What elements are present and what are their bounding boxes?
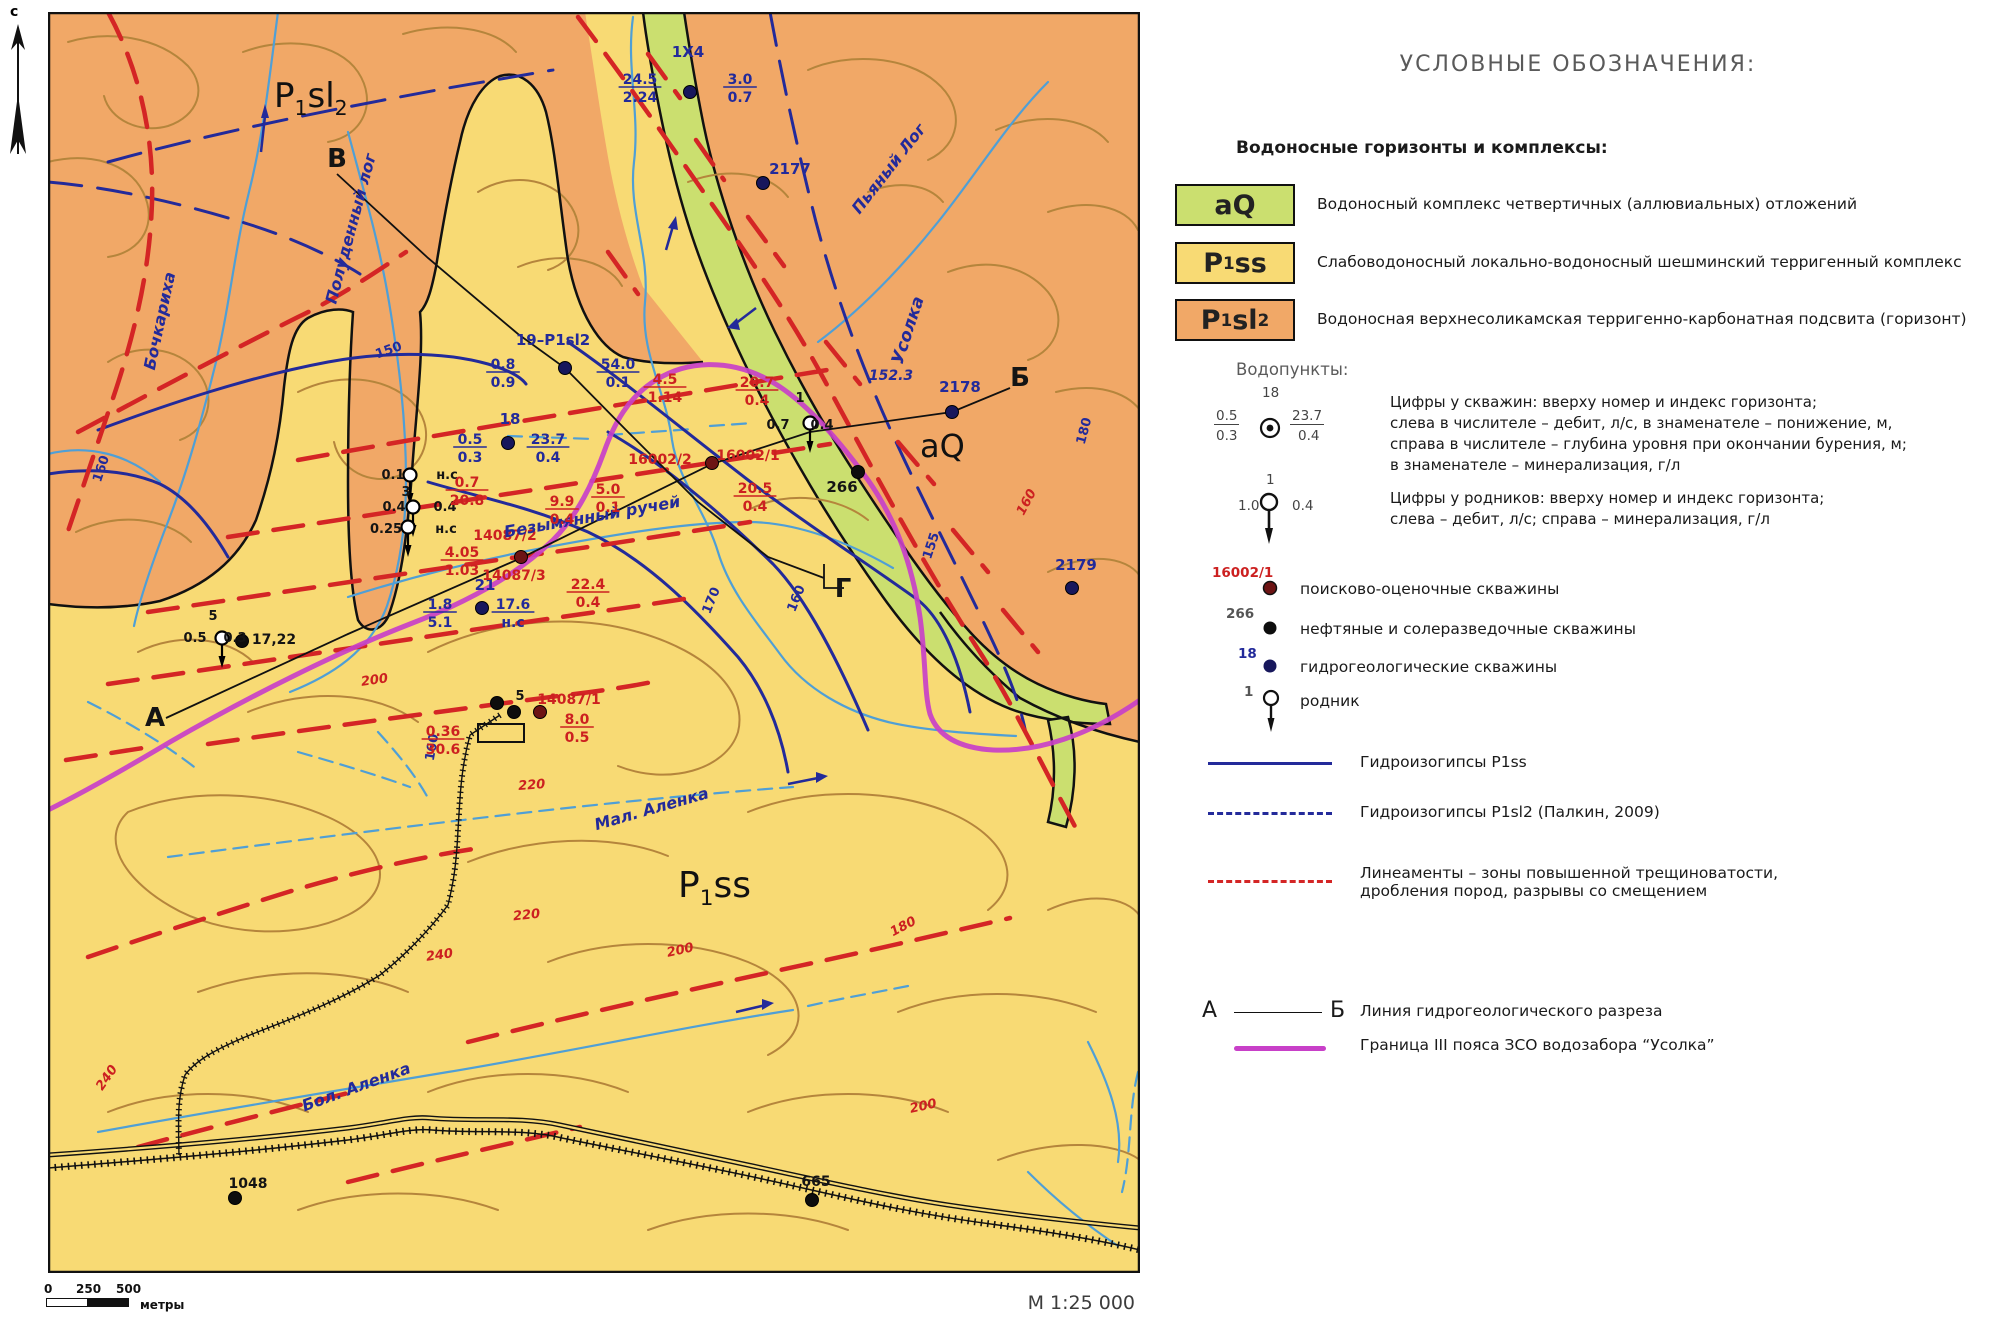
search-well-label: поисково-оценочные скважины	[1300, 580, 1559, 598]
search-well-icon	[1260, 578, 1280, 598]
map-label: 16002/2	[628, 452, 692, 468]
well-symbol-icon	[1256, 414, 1284, 442]
search-well-dot	[515, 551, 528, 564]
well-diagram-left-num: 0.5	[1214, 408, 1239, 425]
spring-row-icon	[1258, 688, 1284, 734]
well-diagram-left-den: 0.3	[1216, 428, 1237, 444]
map-label: 2178	[939, 378, 981, 396]
map-label: 5	[208, 609, 217, 624]
map-label: 14087/1	[537, 692, 601, 708]
spring-symbol-icon	[1254, 490, 1284, 546]
section-a-letter: А	[1202, 998, 1217, 1023]
map-label: 30.6	[426, 742, 461, 758]
geo-unit-label: P1ss	[678, 865, 751, 911]
map-label: 0.4	[576, 595, 601, 611]
legend-panel: УСЛОВНЫЕ ОБОЗНАЧЕНИЯ: Водоносные горизон…	[1150, 0, 2006, 1323]
aq-swatch: aQ	[1175, 184, 1295, 226]
oil-well-dot	[806, 1194, 819, 1207]
scale-seg-black	[87, 1298, 129, 1307]
map-label: 23.7	[531, 432, 566, 448]
map-label: 5	[515, 689, 524, 704]
map-label: 0.8	[491, 357, 516, 373]
map-canvas: 1X4217719–P1sl2182121782179152.315016017…	[48, 12, 1140, 1273]
oil-well-tag: 266	[1226, 606, 1254, 622]
map-label: 3.0	[728, 72, 753, 88]
map-label: 1X4	[672, 43, 704, 61]
north-arrow: с	[2, 2, 46, 172]
map-label: 0.1	[596, 500, 621, 516]
map-label: 0.7	[455, 475, 480, 491]
map-label: 16002/1	[716, 448, 780, 464]
well-diagram-top: 18	[1262, 385, 1279, 401]
spring-tag: 1	[1244, 684, 1253, 700]
map-label: 1.03	[445, 563, 480, 579]
aquifers-heading: Водоносные горизонты и комплексы:	[1236, 138, 1608, 158]
map-label: 0.25	[370, 522, 402, 537]
map-label: 9.9	[550, 494, 575, 510]
map-label: 0.5	[183, 631, 206, 646]
waterpoints-heading: Водопункты:	[1236, 360, 1348, 379]
map-label: 3	[401, 485, 410, 500]
map-label: 5.1	[428, 615, 453, 631]
map-label: 20.7	[740, 375, 775, 391]
map-label: 24.5	[623, 72, 658, 88]
map-label: 8.0	[565, 712, 590, 728]
map-label: 1048	[229, 1176, 268, 1192]
map-label: 0.4	[743, 499, 768, 515]
scale-seg-white	[46, 1298, 88, 1307]
map-label: 18	[500, 410, 521, 428]
hydrogeological-map-page: с	[0, 0, 2006, 1323]
map-label: Б	[1010, 363, 1030, 393]
map-label: н.с	[435, 522, 457, 537]
scale-bar: 0 250 500 метры	[40, 1282, 300, 1322]
p1ss-label: Слабоводоносный локально-водоносный шешм…	[1317, 253, 1962, 272]
legend-aquifer-row: P1sl2 Водоносная верхнесоликамская терри…	[1175, 300, 1995, 340]
hydroisohypse-p1ss-label: Гидроизогипсы P1ss	[1360, 753, 1527, 771]
map-label: 152.3	[869, 368, 913, 384]
oil-well-dot	[508, 706, 521, 719]
hydroisohypse-p1sl2-sample	[1208, 812, 1332, 815]
map-label: 14087/3	[482, 568, 546, 584]
scale-tick-250: 250	[76, 1282, 101, 1296]
hydro-well-dot	[946, 406, 959, 419]
oil-well-icon	[1260, 618, 1280, 638]
oil-well-dot	[229, 1192, 242, 1205]
map-label: А	[145, 703, 165, 733]
scale-tick-500: 500	[116, 1282, 141, 1296]
hydro-well-tag: 18	[1238, 646, 1257, 662]
hydro-well-label: гидрогеологические скважины	[1300, 658, 1557, 676]
map-label: Г	[835, 574, 852, 604]
map-label: 4.05	[445, 545, 480, 561]
legend-title: УСЛОВНЫЕ ОБОЗНАЧЕНИЯ:	[1150, 52, 2006, 77]
spring-label: родник	[1300, 692, 1360, 710]
map-label: 0.1	[606, 375, 631, 391]
lineament-sample	[1208, 880, 1332, 883]
section-line-sample	[1234, 1012, 1322, 1013]
legend-aquifer-row: P1ss Слабоводоносный локально-водоносный…	[1175, 243, 1995, 283]
map-label: 0.7	[766, 418, 789, 433]
well-diagram-desc: Цифры у скважин: вверху номер и индекс г…	[1390, 392, 1907, 476]
legend-aquifer-row: aQ Водоносный комплекс четвертичных (алл…	[1175, 185, 1995, 225]
map-shape	[407, 501, 420, 514]
map-label: 0.4	[550, 512, 575, 528]
scale-unit: метры	[140, 1298, 184, 1312]
p1ss-swatch: P1ss	[1175, 242, 1295, 284]
map-label: 2179	[1055, 556, 1097, 574]
map-label: 0.4	[382, 500, 405, 515]
map-label: 0.4	[745, 393, 770, 409]
map-label: 0.3	[458, 450, 483, 466]
map-label: 19–P1sl2	[516, 331, 590, 349]
map-label: 17,22	[252, 632, 296, 648]
well-diagram-right-den: 0.4	[1298, 428, 1319, 444]
north-label: с	[10, 4, 18, 20]
spring-diagram-right: 0.4	[1292, 498, 1313, 514]
hydro-well-icon	[1260, 656, 1280, 676]
map-label: В	[327, 144, 347, 174]
map-label: 0.9	[491, 375, 516, 391]
hydroisohypse-p1ss-sample	[1208, 762, 1332, 765]
hydro-well-dot	[502, 437, 515, 450]
map-label: 4.5	[653, 372, 678, 388]
map-label: 0.4	[810, 418, 833, 433]
aq-label: Водоносный комплекс четвертичных (аллюви…	[1317, 195, 1857, 214]
hydro-well-dot	[684, 86, 697, 99]
geo-unit-label: aQ	[920, 427, 965, 465]
map-label: 266	[826, 478, 857, 496]
hydro-well-dot	[757, 177, 770, 190]
map-label: 22.4	[571, 577, 606, 593]
oil-well-dot	[852, 466, 865, 479]
map-label: 54.0	[601, 357, 636, 373]
map-label: 0.36	[426, 724, 461, 740]
zso-boundary-sample	[1234, 1046, 1326, 1051]
hydro-well-dot	[559, 362, 572, 375]
map-label: 220	[518, 777, 546, 794]
lineament-label: Линеаменты – зоны повышенной трещиновато…	[1360, 864, 1778, 900]
oil-well-label: нефтяные и солеразведочные скважины	[1300, 620, 1636, 638]
well-diagram-right-num: 23.7	[1290, 408, 1324, 425]
map-label: 220	[512, 907, 541, 925]
section-b-letter: Б	[1330, 998, 1345, 1023]
map-label: 17.6	[496, 597, 531, 613]
map-label: 1.8	[428, 597, 453, 613]
scale-tick-0: 0	[44, 1282, 52, 1296]
map-shape	[404, 469, 417, 482]
spring-diagram-top: 1	[1266, 472, 1275, 488]
hydro-well-dot	[1066, 582, 1079, 595]
zso-boundary-label: Граница III пояса ЗСО водозабора “Усолка…	[1360, 1036, 1715, 1054]
map-label: 0.7	[728, 90, 753, 106]
map-label: 20.5	[738, 481, 773, 497]
map-label: 2.24	[623, 90, 658, 106]
map-label: 0.4	[536, 450, 561, 466]
map-shape	[402, 521, 415, 534]
p1sl2-swatch: P1sl2	[1175, 299, 1295, 341]
map-label: 2177	[769, 160, 811, 178]
map-label: 1	[795, 391, 804, 406]
map-label: 0.1	[381, 468, 404, 483]
p1sl2-label: Водоносная верхнесоликамская терригенно-…	[1317, 310, 1967, 329]
section-label: Линия гидрогеологического разреза	[1360, 1002, 1663, 1020]
map-label: 20.8	[450, 493, 485, 509]
map-label: 5.0	[596, 482, 621, 498]
map-label: н.с	[501, 615, 524, 631]
oil-well-dot	[491, 697, 504, 710]
map-label: 0.5	[458, 432, 483, 448]
map-scale-note: М 1:25 000	[935, 1292, 1135, 1314]
spring-diagram-desc: Цифры у родников: вверху номер и индекс …	[1390, 488, 1824, 530]
map-label: 1.14	[648, 390, 683, 406]
map-label: 0.3	[223, 631, 246, 646]
map-label: 0.5	[565, 730, 590, 746]
map-label: 665	[801, 1174, 830, 1190]
hydro-well-dot	[476, 602, 489, 615]
hydroisohypse-p1sl2-label: Гидроизогипсы P1sl2 (Палкин, 2009)	[1360, 803, 1660, 821]
